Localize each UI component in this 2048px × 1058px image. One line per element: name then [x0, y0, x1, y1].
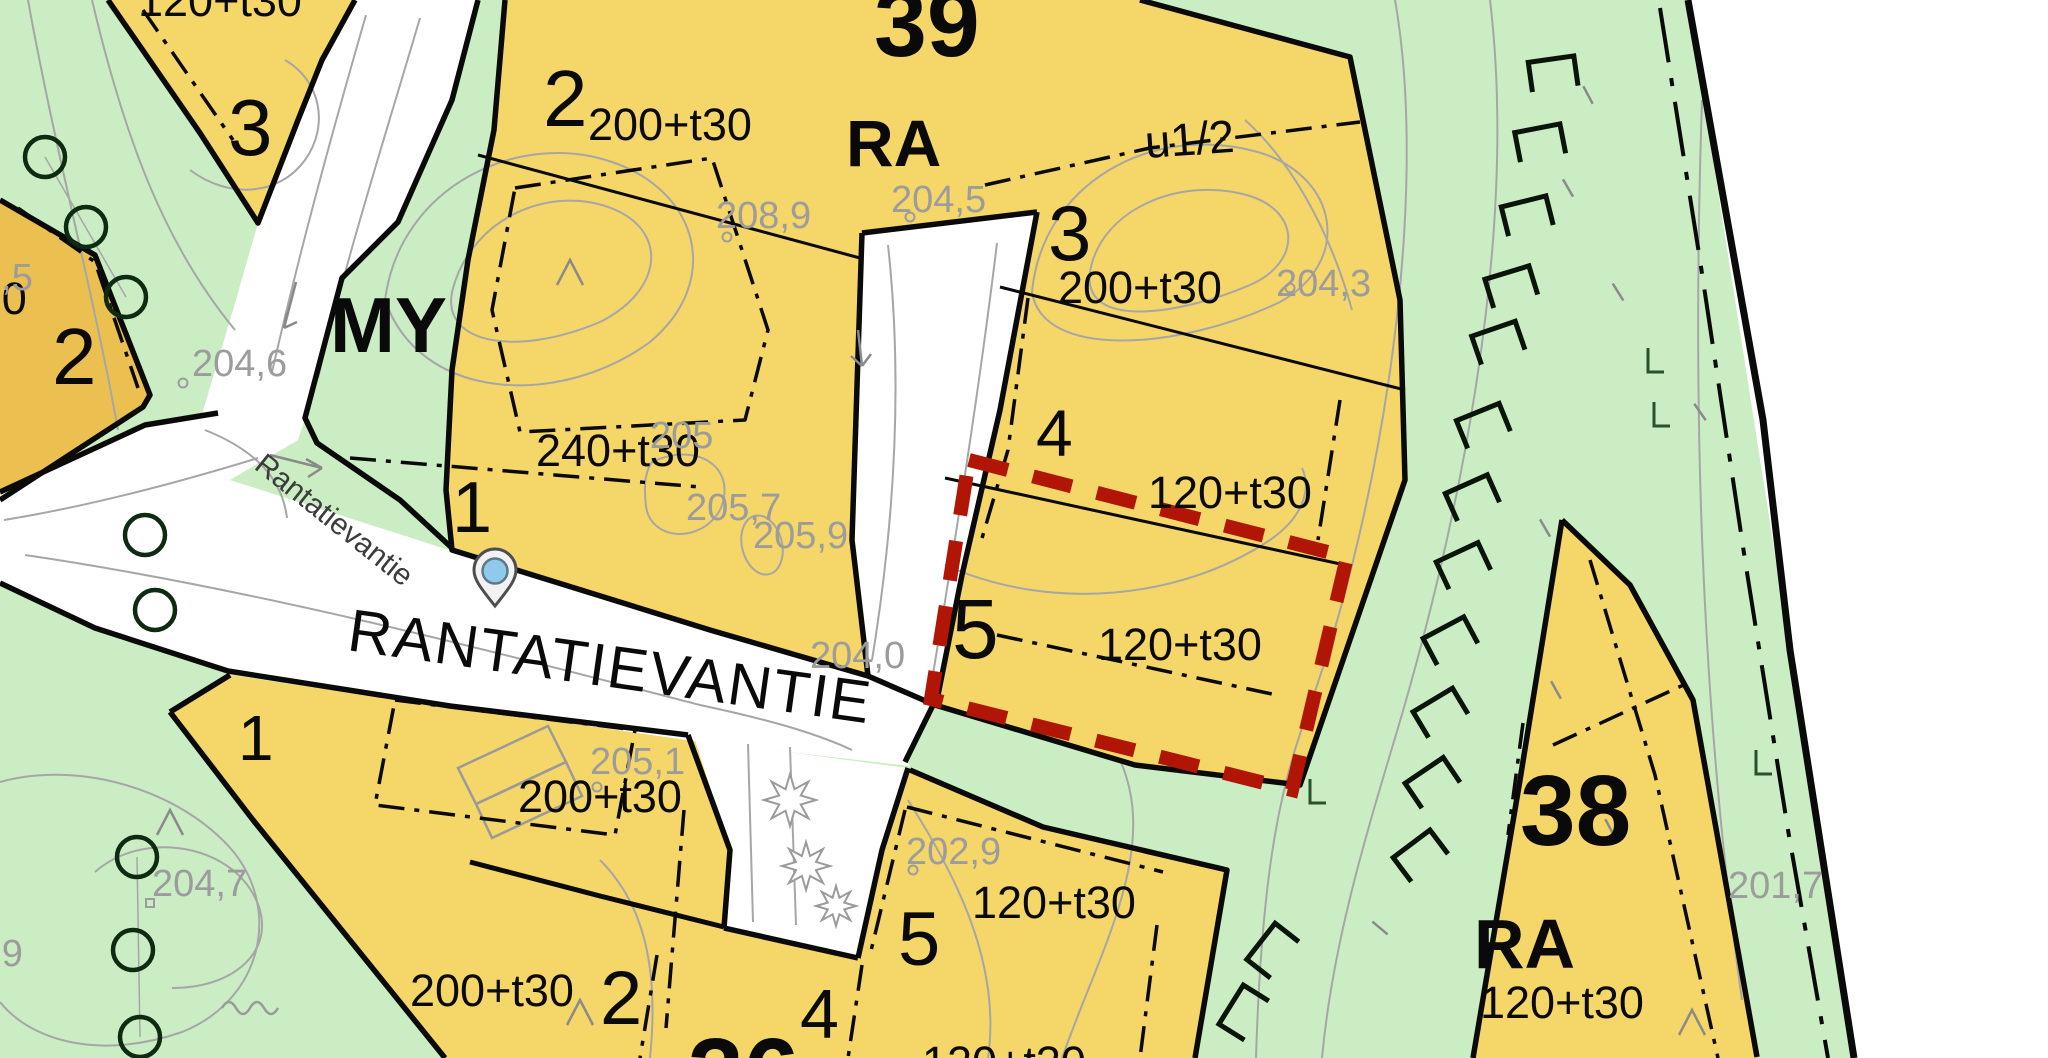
map-label: RA	[846, 106, 941, 180]
map-label: 120+t30	[922, 1037, 1086, 1058]
map-label: 120+t30	[1098, 619, 1262, 670]
map-label: 39	[874, 0, 980, 77]
map-label: 200+t30	[410, 965, 574, 1016]
map-label: 2,9	[0, 933, 23, 975]
map-label: 200+t30	[588, 99, 752, 150]
pin-dot[interactable]	[483, 559, 508, 584]
zoning-map-canvas[interactable]: 120+t3032200+t3039RAu1/23200+t304120+t30…	[0, 0, 2048, 1058]
map-label: 205	[650, 415, 713, 457]
map-label: 120+t30	[1148, 467, 1312, 518]
map-label: 120+t30	[1480, 977, 1644, 1028]
map-label: 2	[543, 54, 588, 143]
map-label: 5,5	[0, 257, 33, 299]
map-label: 208,9	[716, 195, 811, 237]
map-label: 205,9	[753, 515, 848, 557]
map-label: 201,7	[1728, 865, 1823, 907]
map-label: 204,0	[810, 635, 905, 677]
map-label: 204,3	[1276, 263, 1371, 305]
map-label: 3	[228, 83, 273, 172]
map-label: 200+t30	[1058, 262, 1222, 313]
map-label: u1/2	[1143, 110, 1236, 168]
map-label: 4	[1036, 396, 1073, 470]
map-label: MY	[330, 281, 447, 369]
map-label: 202,9	[906, 831, 1001, 873]
map-label: 204,6	[192, 343, 287, 385]
map-viewport: 120+t3032200+t3039RAu1/23200+t304120+t30…	[0, 0, 2048, 1058]
map-label: 1	[238, 702, 274, 774]
map-label: 1	[452, 468, 492, 548]
map-label: 5	[898, 897, 940, 982]
map-label: 2	[600, 956, 642, 1041]
map-label: 38	[1520, 755, 1631, 867]
map-label: 120+t30	[972, 877, 1136, 928]
map-label: 36	[688, 1018, 799, 1058]
map-label: 5	[952, 582, 999, 676]
map-label: 204,7	[152, 863, 247, 905]
boulder-star-icon	[816, 886, 856, 926]
map-label: RA	[1474, 905, 1575, 983]
boulder-star-icon	[764, 774, 816, 826]
map-label: 120+t30	[138, 0, 302, 26]
boulder-star-icon	[782, 842, 830, 890]
map-label: 204,5	[891, 179, 986, 221]
map-label: 205,1	[590, 741, 685, 783]
map-label: 2	[52, 312, 97, 401]
map-label: 4	[800, 975, 839, 1053]
